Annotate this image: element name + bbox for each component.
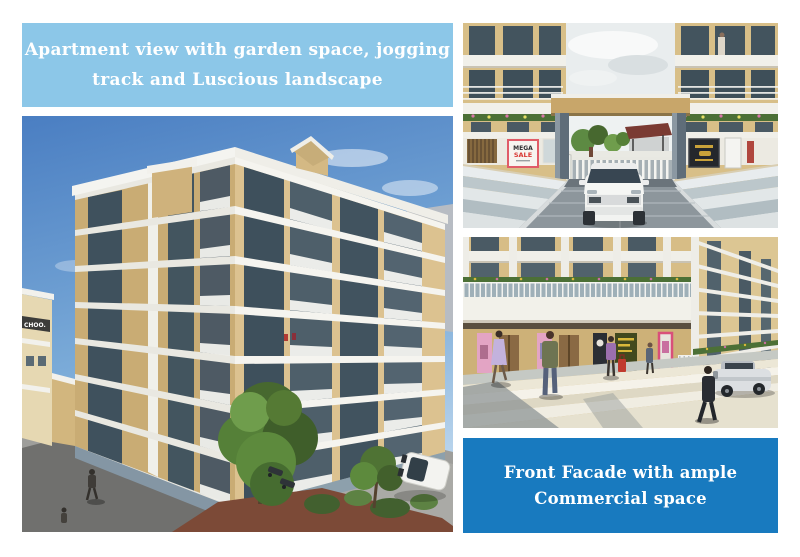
low-wing	[52, 378, 75, 446]
brochure-page: Apartment view with garden space, joggin…	[0, 0, 800, 557]
top-caption-line2: track and Luscious landscape	[92, 65, 383, 95]
facade-view-image	[463, 237, 778, 428]
upper-floors	[463, 237, 693, 332]
svg-text:SALE: SALE	[514, 151, 532, 159]
balcony-railing	[463, 283, 693, 297]
top-caption-line1: Apartment view with garden space, joggin…	[25, 35, 450, 65]
mega-sale-sign: MEGA SALE	[508, 140, 538, 167]
flower-band	[463, 114, 566, 121]
entrance-view-image: MEGA SALE	[463, 23, 778, 228]
bottom-caption-line2: Commercial space	[534, 486, 707, 512]
bottom-caption-line1: Front Facade with ample	[504, 460, 737, 486]
top-caption: Apartment view with garden space, joggin…	[22, 23, 453, 107]
school-sign-text: CHOO.	[24, 322, 46, 329]
apartment-view-image: CHOO.	[22, 116, 453, 532]
school-building: CHOO.	[22, 288, 54, 446]
dark-shop-sign	[689, 139, 719, 167]
bottom-caption: Front Facade with ample Commercial space	[463, 438, 778, 533]
